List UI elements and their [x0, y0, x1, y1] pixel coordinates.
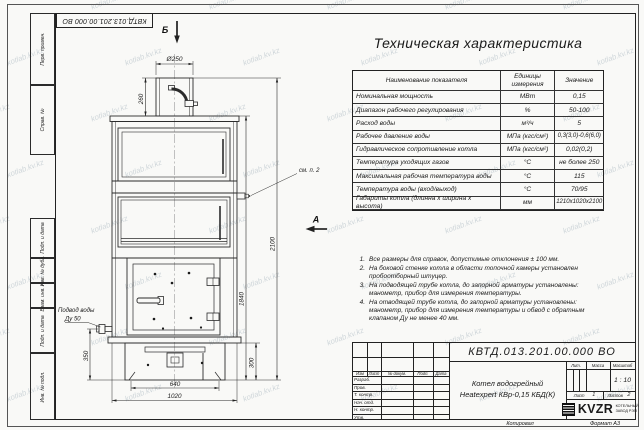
- scale-label: Масштаб: [610, 361, 635, 369]
- spec-cell: °С: [501, 170, 555, 183]
- middle-panel: [118, 197, 230, 247]
- margin-label: Подп. и дата: [40, 315, 46, 346]
- margin-label: Взам. инв. №: [40, 280, 46, 311]
- dim-body-height: 1840: [239, 292, 246, 307]
- lit-label: Лит.: [566, 361, 586, 369]
- sheet-label: Лист: [574, 393, 585, 398]
- spec-cell: Номинальная мощность: [353, 91, 501, 104]
- section-arrow-b: Б: [162, 21, 180, 44]
- spec-cell: Гидравлическое сопротивление котла: [353, 144, 501, 157]
- spec-cell: °С: [501, 183, 555, 196]
- note-text: На боковой стенке котла в области топочн…: [369, 265, 608, 281]
- spec-cell: 0,3(3,0)-0,6(6,0): [555, 131, 604, 144]
- rev-col-podp: Подп.: [413, 371, 433, 376]
- margin-label: Инв. № подл.: [40, 371, 46, 402]
- chimney: [156, 78, 198, 116]
- spec-cell: Расход воды: [353, 117, 501, 130]
- sheets-label: Листов: [608, 393, 623, 398]
- note-item: 3.На подводящей трубе котла, до запорной…: [356, 282, 608, 298]
- view-arrow-a: А: [306, 215, 328, 233]
- dim-chimney-dia: Ø250: [166, 56, 183, 63]
- dim-base-width: 640: [170, 381, 181, 388]
- role-prov: Пров.: [354, 384, 381, 392]
- logo-abbr: KVZR: [578, 402, 613, 416]
- rev-col-data: Дата: [433, 371, 449, 376]
- door-handle: [137, 298, 160, 303]
- logo-icon: [562, 403, 575, 416]
- product-name: Котел водогрейный Heatexpert КВр-0,15 КБ…: [449, 361, 566, 419]
- spec-cell: не более 250: [555, 157, 604, 170]
- spec-cell: м³/ч: [501, 117, 555, 130]
- rev-col-docnum: № докум.: [381, 371, 413, 376]
- margin-cell-podp-data-1: Подп. и дата: [30, 218, 55, 258]
- spec-cell: мм: [501, 197, 555, 210]
- spec-table-title: Техническая характеристика: [352, 35, 604, 51]
- company-logo: KVZR КОТЕЛЬНЫЙ ЗАВОД РЭП: [566, 399, 635, 419]
- product-name-line2: Heatexpert КВр-0,15 КБД(К): [460, 390, 555, 401]
- sampling-fitting: [237, 193, 245, 199]
- col-header-value: Значение: [555, 71, 604, 91]
- section-label-b: Б: [162, 25, 169, 35]
- spec-cell: 0,15: [555, 91, 604, 104]
- dimensions: Ø250 260 1840 2100 350 300 640: [83, 56, 281, 403]
- water-inlet-pipe: [97, 325, 113, 334]
- note-number: 3.: [356, 282, 365, 298]
- note-text: На подводящей трубе котла, до запорной а…: [369, 282, 608, 298]
- product-name-line1: Котел водогрейный: [472, 379, 543, 390]
- format-label: Формат А3: [570, 421, 640, 427]
- spec-cell: 1210х1020х2100: [555, 197, 604, 210]
- role-razrab: Разраб.: [354, 376, 381, 384]
- col-header-name: Наименование показателя: [353, 71, 501, 91]
- doc-number-cell: КВТД.013.201.00.000 ВО: [449, 343, 635, 361]
- note-number: 2.: [356, 265, 365, 281]
- spec-cell: 5: [555, 117, 604, 130]
- view-label-a: А: [312, 215, 320, 225]
- sheets-cell: Листов2: [603, 391, 635, 399]
- margin-cell-podp-data-2: Подп. и дата: [30, 308, 55, 353]
- spec-cell: 115: [555, 170, 604, 183]
- scale-value: 1 : 10: [610, 369, 635, 391]
- spec-cell: МПа (кгс/см²): [501, 131, 555, 144]
- margin-cell-inv-podl: Инв. № подл.: [30, 353, 55, 420]
- water-inlet-callout: Подвод воды Ду 50: [58, 308, 101, 327]
- notes-list: 1.Все размеры для справок, допустимые от…: [356, 256, 608, 324]
- spec-cell: 50-100: [555, 104, 604, 117]
- spec-table: Наименование показателя Единицы измерени…: [352, 70, 604, 211]
- spec-cell: 70/95: [555, 183, 604, 196]
- drawing-sheet: kotlab.kv.kzkotlab.kv.kzkotlab.kv.kzkotl…: [0, 0, 644, 430]
- note-number: 4.: [356, 299, 365, 323]
- role-nachotd: Нач. отд.: [354, 399, 381, 407]
- dim-base-height: 300: [249, 357, 256, 368]
- sheet-number: 1: [592, 392, 595, 398]
- company-line2: ЗАВОД РЭП: [616, 409, 639, 414]
- fuel-door: [127, 258, 220, 335]
- spec-cell: МВт: [501, 91, 555, 104]
- copied-label: Копировал: [470, 421, 570, 427]
- spec-cell: МПа (кгс/см²): [501, 144, 555, 157]
- spec-cell: Габариты котла (длинна х ширина х высота…: [353, 197, 501, 210]
- margin-cell-vzam-inv: Взам. инв. №: [30, 283, 55, 308]
- sheet-cell: Лист1: [566, 391, 603, 399]
- spec-cell: %: [501, 104, 555, 117]
- spec-cell: Рабочее давление воды: [353, 131, 501, 144]
- spec-cell: Максимальная рабочая температура воды: [353, 170, 501, 183]
- dim-inlet-height: 350: [83, 350, 90, 361]
- company-name: КОТЕЛЬНЫЙ ЗАВОД РЭП: [616, 404, 639, 413]
- spec-cell: °С: [501, 157, 555, 170]
- dim-chimney-height: 260: [138, 93, 145, 105]
- note-item: 4.На отводящей трубе котла, до запорной …: [356, 299, 608, 323]
- note-item: 1.Все размеры для справок, допустимые от…: [356, 256, 608, 264]
- upper-panel: [118, 128, 230, 181]
- role-utv: Утв.: [354, 414, 381, 422]
- margin-label: Справ. №: [40, 109, 46, 132]
- margin-label: Подп. и дата: [40, 222, 46, 253]
- spec-cell: Диапазон рабочего регулирования: [353, 104, 501, 117]
- margin-label: Перв. примен.: [40, 32, 46, 65]
- note-text: На отводящей трубе котла, до запорной ар…: [369, 299, 608, 323]
- margin-cell-inv-dubl: Инв. № дубл.: [30, 258, 55, 283]
- col-header-unit: Единицы измерения: [501, 71, 555, 91]
- mass-label: Масса: [586, 361, 610, 369]
- note-item: 2.На боковой стенке котла в области топо…: [356, 265, 608, 281]
- margin-cell-sprav: Справ. №: [30, 85, 55, 155]
- callout-note2: см. п. 2: [249, 168, 320, 197]
- water-inlet-label-1: Подвод воды: [58, 308, 95, 314]
- boiler-front-view: Б: [55, 16, 345, 422]
- dim-total-height: 2100: [270, 237, 277, 253]
- boiler-body: [110, 116, 249, 337]
- sheets-number: 2: [627, 392, 630, 398]
- role-nkontr: Н. контр.: [354, 406, 381, 414]
- note-text: Все размеры для справок, допустимые откл…: [369, 256, 559, 264]
- spec-cell: Температура уходящих газов: [353, 157, 501, 170]
- note-number: 1.: [356, 256, 365, 264]
- dim-body-width: 1020: [167, 393, 182, 400]
- role-tkontr: Т. контр.: [354, 391, 381, 399]
- title-block: Изм Лист № докум. Подп. Дата Разраб. Про…: [352, 342, 636, 420]
- callout-note2-label: см. п. 2: [299, 168, 320, 174]
- water-inlet-label-2: Ду 50: [64, 317, 81, 323]
- margin-cell-perv-primen: Перв. примен.: [30, 13, 55, 85]
- spec-cell: 0,02(0,2): [555, 144, 604, 157]
